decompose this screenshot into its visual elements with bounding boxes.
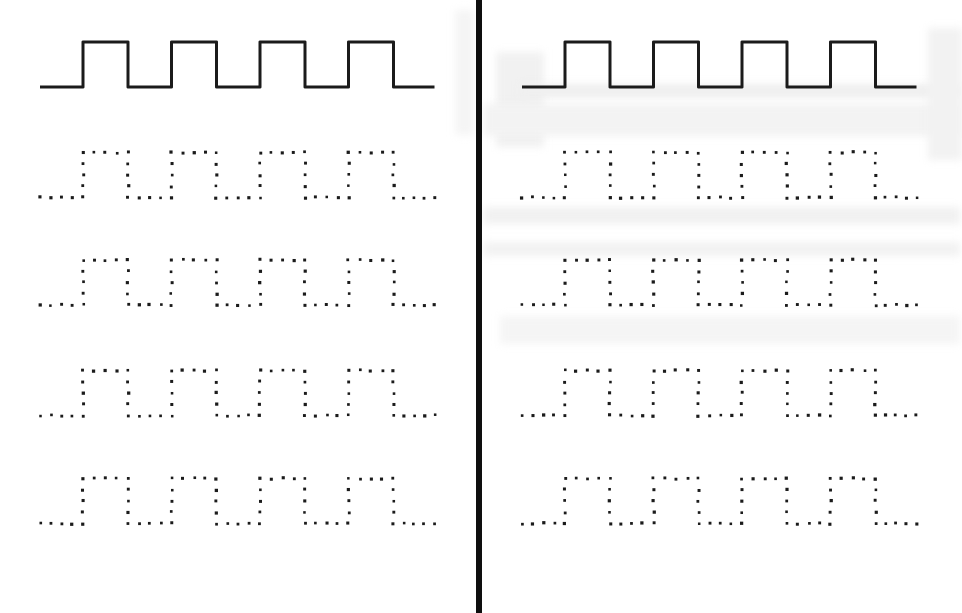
trace-dot [874, 281, 877, 284]
trace-dot [171, 415, 174, 418]
trace-dot [127, 500, 130, 503]
trace-dot [71, 415, 74, 418]
trace-dot [182, 152, 185, 155]
trace-dot [391, 477, 394, 480]
trace-dot [433, 196, 436, 199]
trace-dot [609, 151, 612, 154]
trace-dot [830, 173, 833, 176]
trace-dot [126, 381, 129, 384]
trace-dot [875, 522, 878, 525]
trace-dot [104, 476, 107, 479]
trace-dot [303, 511, 306, 514]
trace-dot [303, 259, 306, 262]
trace-dot [392, 511, 395, 514]
trace-dot [652, 151, 655, 154]
trace-dot [127, 369, 130, 372]
trace-dot [304, 403, 307, 406]
trace-dot [147, 303, 150, 306]
trace-dot [609, 292, 612, 295]
trace-dot [696, 415, 699, 418]
trace-dot [708, 303, 711, 306]
trace-dot [304, 185, 307, 188]
trace-dot [170, 270, 173, 273]
trace-dot [38, 195, 41, 198]
trace-dot [159, 197, 162, 200]
trace-dot [83, 303, 86, 306]
trace-dot [774, 477, 777, 480]
trace-dot [171, 281, 174, 284]
trace-dot [785, 500, 788, 503]
trace-dot [433, 303, 436, 306]
trace-dot [346, 522, 349, 525]
trace-dot [563, 196, 566, 199]
trace-dot [170, 370, 173, 373]
trace-dot [874, 499, 877, 502]
trace-dot [641, 196, 644, 199]
trace-dot [786, 369, 789, 372]
trace-dot [564, 282, 567, 285]
trace-dot [237, 415, 240, 418]
trace-dot [563, 293, 566, 296]
trace-dot [631, 415, 634, 418]
trace-dot [674, 258, 677, 261]
trace-dot [697, 477, 700, 480]
trace-dot [862, 478, 865, 481]
trace-dot [314, 195, 317, 198]
trace-dot [81, 477, 84, 480]
trace-dot [347, 499, 350, 502]
trace-dot [763, 370, 766, 373]
trace-dot [597, 477, 600, 480]
trace-dot [796, 303, 799, 306]
trace-dot [171, 162, 174, 165]
trace-dot [127, 488, 130, 491]
trace-dot [391, 303, 394, 306]
right-row-5-dotted-wave [521, 476, 918, 526]
trace-dot [127, 415, 130, 418]
trace-dot [841, 259, 844, 262]
trace-dot [563, 403, 566, 406]
trace-dot [60, 196, 63, 199]
trace-dot [763, 258, 766, 261]
trace-dot [215, 369, 218, 372]
trace-dot [552, 413, 555, 416]
trace-dot [60, 415, 63, 418]
trace-dot [138, 415, 141, 418]
trace-dot [863, 151, 866, 154]
trace-dot [82, 173, 85, 176]
trace-dot [741, 151, 744, 154]
trace-dot [215, 293, 218, 296]
trace-dot [663, 476, 666, 479]
trace-dot [608, 281, 611, 284]
trace-dot [818, 413, 821, 416]
trace-dot [630, 196, 633, 199]
trace-dot [215, 151, 218, 154]
trace-dot [652, 402, 655, 405]
trace-dot [170, 259, 173, 262]
trace-dot [359, 258, 362, 261]
trace-dot [402, 414, 405, 417]
trace-dot [82, 259, 85, 262]
trace-dot [393, 163, 396, 166]
trace-dot [830, 381, 833, 384]
trace-dot [70, 523, 73, 526]
trace-dot [359, 368, 362, 371]
trace-dot [741, 281, 744, 284]
trace-dot [203, 477, 206, 480]
trace-dot [664, 151, 667, 154]
trace-dot [346, 258, 349, 261]
trace-dot [126, 293, 129, 296]
trace-dot [697, 292, 700, 295]
trace-dot [786, 152, 789, 155]
trace-dot [752, 477, 755, 480]
trace-dot [423, 304, 426, 307]
trace-dot [542, 413, 545, 416]
trace-dot [50, 522, 53, 525]
trace-dot [259, 197, 262, 200]
trace-dot [258, 281, 261, 284]
trace-dot [630, 303, 633, 306]
trace-dot [314, 304, 317, 307]
trace-dot [370, 151, 373, 154]
trace-dot [215, 185, 218, 188]
trace-dot [169, 292, 172, 295]
trace-dot [663, 259, 666, 262]
trace-dot [652, 304, 655, 307]
trace-dot [687, 477, 690, 480]
trace-dot [392, 259, 395, 262]
trace-dot [796, 414, 799, 417]
trace-dot [392, 488, 395, 491]
trace-dot [718, 303, 721, 306]
trace-dot [215, 523, 218, 526]
trace-dot [764, 477, 767, 480]
trace-dot [740, 500, 743, 503]
trace-dot [564, 304, 567, 307]
trace-dot [393, 270, 396, 273]
trace-dot [874, 369, 877, 372]
trace-dot [293, 477, 296, 480]
trace-dot [619, 197, 622, 200]
trace-dot [564, 369, 567, 372]
trace-dot [641, 414, 644, 417]
trace-dot [259, 303, 262, 306]
trace-dot [697, 391, 700, 394]
trace-dot [81, 195, 84, 198]
trace-dot [270, 259, 273, 262]
trace-dot [270, 151, 273, 154]
trace-dot [904, 414, 907, 417]
trace-dot [874, 293, 877, 296]
trace-dot [751, 258, 754, 261]
trace-dot [148, 196, 151, 199]
trace-dot [608, 270, 611, 273]
trace-dot [730, 414, 733, 417]
trace-dot [126, 511, 129, 514]
trace-dot [775, 151, 778, 154]
trace-dot [422, 522, 425, 525]
trace-dot [247, 196, 250, 199]
trace-dot [325, 196, 328, 199]
trace-dot [82, 402, 85, 405]
trace-dot [698, 511, 701, 514]
trace-dot [82, 415, 85, 418]
trace-dot [270, 370, 273, 373]
trace-dot [304, 477, 307, 480]
trace-dot [874, 478, 877, 481]
trace-dot [314, 415, 317, 418]
trace-dot [347, 403, 350, 406]
trace-dot [393, 392, 396, 395]
trace-dot [392, 403, 395, 406]
trace-dot [864, 369, 867, 372]
trace-dot [874, 391, 877, 394]
trace-dot [392, 414, 395, 417]
trace-dot [741, 370, 744, 373]
trace-dot [281, 151, 284, 154]
trace-dot [226, 415, 229, 418]
trace-dot [875, 489, 878, 492]
trace-dot [348, 196, 351, 199]
trace-dot [652, 476, 655, 479]
trace-dot [304, 381, 307, 384]
trace-dot [81, 510, 84, 513]
trace-dot [258, 414, 261, 417]
trace-dot [403, 522, 406, 525]
left-row-2-dotted-wave [38, 150, 436, 199]
trace-dot [575, 477, 578, 480]
trace-dot [359, 478, 362, 481]
trace-dot [215, 402, 218, 405]
trace-dot [369, 259, 372, 262]
trace-dot [293, 259, 296, 262]
trace-dot [828, 162, 831, 165]
trace-dot [740, 163, 743, 166]
trace-dot [258, 162, 261, 165]
trace-dot [148, 522, 151, 525]
trace-dot [391, 380, 394, 383]
trace-dot [303, 488, 306, 491]
trace-dot [326, 414, 329, 417]
trace-dot [127, 391, 130, 394]
trace-dot [337, 196, 340, 199]
trace-dot [116, 152, 119, 155]
trace-dot [696, 500, 699, 503]
trace-dot [586, 478, 589, 481]
trace-dot [763, 151, 766, 154]
trace-dot [149, 415, 152, 418]
trace-dot [697, 152, 700, 155]
trace-dot [914, 413, 917, 416]
trace-dot [597, 150, 600, 153]
trace-dot [259, 368, 262, 371]
trace-dot [303, 370, 306, 373]
trace-dot [216, 258, 219, 261]
trace-dot [697, 270, 700, 273]
trace-dot [640, 303, 643, 306]
trace-dot [740, 381, 743, 384]
trace-dot [895, 195, 898, 198]
trace-dot [413, 196, 416, 199]
trace-dot [916, 197, 919, 200]
trace-dot [292, 151, 295, 154]
trace-dot [160, 303, 163, 306]
trace-dot [719, 196, 722, 199]
trace-dot [521, 303, 524, 306]
trace-dot [214, 499, 217, 502]
trace-dot [258, 477, 261, 480]
trace-dot [82, 499, 85, 502]
trace-dot [697, 174, 700, 177]
trace-dot [609, 184, 612, 187]
trace-dot [730, 523, 733, 526]
trace-dot [348, 162, 351, 165]
trace-dot [392, 197, 395, 200]
trace-dot [807, 304, 810, 307]
trace-dot [335, 414, 338, 417]
trace-dot [608, 369, 611, 372]
trace-dot [563, 522, 566, 525]
trace-dot [884, 413, 887, 416]
trace-dot [884, 196, 887, 199]
trace-dot [380, 478, 383, 481]
trace-dot [347, 173, 350, 176]
trace-dot [563, 259, 566, 262]
trace-dot [608, 499, 611, 502]
trace-dot [103, 151, 106, 154]
trace-dot [391, 522, 394, 525]
trace-dot [304, 270, 307, 273]
trace-dot [303, 280, 306, 283]
trace-dot [608, 303, 611, 306]
trace-dot [697, 163, 700, 166]
left-panel [38, 42, 436, 526]
trace-dot [81, 523, 84, 526]
trace-dot [652, 488, 655, 491]
trace-dot [874, 259, 877, 262]
trace-dot [413, 415, 416, 418]
trace-dot [697, 280, 700, 283]
trace-dot [303, 499, 306, 502]
trace-dot [785, 173, 788, 176]
trace-dot [619, 523, 622, 526]
trace-dot [829, 151, 832, 154]
trace-dot [674, 368, 677, 371]
trace-dot [652, 196, 655, 199]
trace-dot [215, 282, 218, 285]
trace-dot [216, 414, 219, 417]
left-row-4-dotted-wave [39, 368, 436, 417]
trace-dot [830, 269, 833, 272]
trace-dot [874, 196, 877, 199]
left-row-3-dotted-wave [39, 258, 436, 307]
trace-dot [741, 270, 744, 273]
trace-dot [303, 414, 306, 417]
trace-dot [698, 523, 701, 526]
trace-dot [81, 270, 84, 273]
trace-dot [608, 413, 611, 416]
trace-dot [709, 522, 712, 525]
trace-dot [609, 381, 612, 384]
trace-dot [127, 303, 130, 306]
trace-dot [785, 477, 788, 480]
trace-dot [214, 477, 217, 480]
trace-dot [215, 173, 218, 176]
trace-dot [740, 258, 743, 261]
trace-dot [81, 369, 84, 372]
trace-dot [259, 293, 262, 296]
trace-dot [347, 381, 350, 384]
worksheet-page [0, 0, 962, 613]
trace-dot [370, 478, 373, 481]
trace-dot [905, 304, 908, 307]
trace-dot [564, 174, 567, 177]
trace-dot [818, 521, 821, 524]
trace-dot [115, 258, 118, 261]
trace-dot [49, 304, 52, 307]
trace-dot [563, 487, 566, 490]
trace-dot [170, 380, 173, 383]
trace-dot [651, 270, 654, 273]
trace-dot [126, 163, 129, 166]
right-row-1-solid-wave [522, 42, 917, 87]
trace-dot [402, 197, 405, 200]
trace-dot [170, 403, 173, 406]
trace-dot [830, 258, 833, 261]
trace-dot [393, 184, 396, 187]
trace-dot [740, 304, 743, 307]
trace-dot [608, 258, 611, 261]
trace-dot [236, 304, 239, 307]
trace-dot [259, 152, 262, 155]
trace-dot [698, 259, 701, 262]
trace-dot [596, 370, 599, 373]
trace-dot [640, 521, 643, 524]
trace-dot [818, 195, 821, 198]
trace-dot [531, 414, 534, 417]
trace-dot [894, 522, 897, 525]
trace-dot [270, 478, 273, 481]
trace-dot [259, 500, 262, 503]
trace-dot [347, 151, 350, 154]
trace-dot [258, 511, 261, 514]
trace-dot [619, 414, 622, 417]
trace-dot [652, 173, 655, 176]
trace-dot [707, 196, 710, 199]
trace-dot [39, 522, 42, 525]
trace-dot [786, 381, 789, 384]
trace-dot [226, 522, 229, 525]
trace-dot [884, 304, 887, 307]
trace-dot [258, 380, 261, 383]
trace-dot [774, 259, 777, 262]
trace-dot [347, 281, 350, 284]
trace-dot [905, 197, 908, 200]
trace-dot [50, 414, 53, 417]
trace-dot [875, 511, 878, 514]
trace-dot [895, 303, 898, 306]
trace-dot [138, 303, 141, 306]
trace-dot [830, 196, 833, 199]
trace-dot [786, 184, 789, 187]
trace-dot [851, 368, 854, 371]
trace-dot [182, 258, 185, 261]
trace-dot [248, 522, 251, 525]
trace-dot [875, 304, 878, 307]
trace-dot [347, 477, 350, 480]
